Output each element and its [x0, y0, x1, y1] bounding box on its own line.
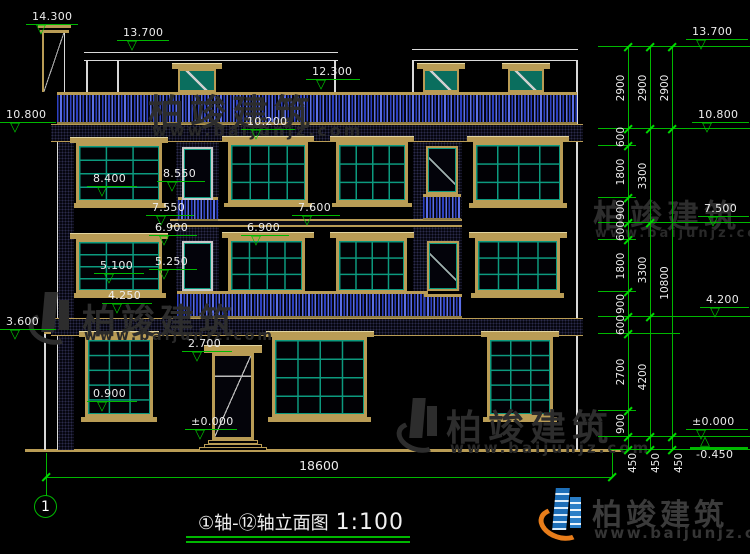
- marker-line: [117, 40, 169, 42]
- marker-value: 10.800: [0, 109, 47, 122]
- triangle-down-icon: ▽: [195, 430, 205, 440]
- dim-label: 450: [627, 453, 639, 473]
- window-2f-mid-left: [228, 238, 305, 293]
- left-wall-outer-line: [44, 333, 46, 450]
- right-roof-slab: [412, 49, 578, 61]
- elevation-marker-8550: 8.550 ▽: [157, 168, 205, 192]
- building-bar-icon: [570, 497, 581, 528]
- triangle-down-icon: ▽: [710, 308, 720, 318]
- dim-tick: [608, 473, 617, 482]
- dim-label: 450: [650, 453, 662, 473]
- dim-label: 900: [615, 294, 627, 314]
- marker-value: ±0.000: [185, 416, 235, 429]
- total-width-dim: 18600: [284, 458, 354, 473]
- triangle-down-icon: ▽: [10, 330, 20, 340]
- window-sill: [81, 417, 157, 422]
- elevation-marker-minus0450-right: △ -0.450: [690, 437, 748, 461]
- elevation-marker-4250: 4.250 ▽: [102, 290, 152, 314]
- watermark-url-left: www.baijunjz.com: [84, 328, 275, 344]
- marker-value: 7.500: [698, 203, 738, 216]
- drawing-title: ①轴-⑫轴立面图1:100: [190, 509, 412, 535]
- title-underline-2: [186, 541, 410, 543]
- marker-line: [185, 429, 237, 431]
- triangle-down-icon: ▽: [104, 274, 114, 284]
- elevation-marker-6900-mid: 6.900 ▽: [241, 222, 289, 246]
- triangle-down-icon: ▽: [97, 187, 107, 197]
- marker-value: 5.250: [149, 256, 189, 269]
- marker-line: [698, 216, 749, 218]
- triangle-down-icon: ▽: [192, 352, 202, 362]
- dim-extension-line: [598, 197, 636, 198]
- triangle-down-icon: ▽: [159, 236, 169, 246]
- brand-logo-url: www.baijunjz.com: [594, 524, 750, 542]
- marker-line: [241, 235, 289, 237]
- watermark-url-center: www.baijunjz.com: [450, 439, 651, 457]
- roof-parapet-balustrade: [57, 92, 577, 124]
- axis-bubble-label: 1: [41, 499, 50, 515]
- left-slab-post-a: [86, 61, 88, 92]
- triangle-down-icon: ▽: [112, 304, 122, 314]
- marker-value: 14.300: [26, 11, 73, 24]
- marker-value: 13.700: [686, 26, 733, 39]
- elevation-marker-10200: 10.200 ▽: [241, 116, 295, 140]
- dim-chain-line-outer: [672, 47, 673, 450]
- chimney-body: [42, 33, 65, 92]
- triangle-down-icon: ▽: [251, 130, 261, 140]
- marker-line: [700, 307, 749, 309]
- right-pavilion1-window: [423, 69, 459, 92]
- marker-value: ±0.000: [686, 416, 736, 429]
- entry-step-3: [199, 447, 267, 451]
- triangle-down-icon: ▽: [36, 25, 46, 35]
- elevation-marker-0000-entry: ±0.000 ▽: [185, 416, 237, 440]
- drawing-scale: 1:100: [336, 510, 404, 535]
- elevation-drawing-canvas: 2900 600 1800 900 600 1800 900 600 2700 …: [0, 0, 750, 554]
- left-slab-post-b: [117, 61, 119, 92]
- window-sill: [332, 203, 412, 207]
- triangle-down-icon: ▽: [159, 270, 169, 280]
- triangle-down-icon: ▽: [708, 217, 718, 227]
- marker-line: [26, 24, 78, 26]
- elevation-marker-4200-right: 4.200 ▽: [700, 294, 749, 318]
- marker-value: 6.900: [149, 222, 189, 235]
- triangle-down-icon: ▽: [302, 216, 312, 226]
- marker-value: 6.900: [241, 222, 281, 235]
- right-slab-post: [412, 61, 414, 92]
- triangle-down-icon: ▽: [10, 123, 20, 133]
- marker-value: 4.250: [102, 290, 142, 303]
- dim-chain-line-mid: [650, 47, 651, 450]
- marker-line: [0, 122, 56, 124]
- axis-bubble-1: 1: [34, 495, 57, 518]
- marker-line: [87, 401, 137, 403]
- marker-line: [149, 235, 197, 237]
- window-3f-mid-right: [336, 142, 408, 203]
- dim-extension-line: [598, 410, 636, 411]
- triangle-down-icon: ▽: [167, 182, 177, 192]
- marker-value: 10.200: [241, 116, 288, 129]
- bottom-dim-line: [46, 477, 612, 478]
- marker-value: 8.550: [157, 168, 197, 181]
- dim-label: 2900: [637, 75, 649, 102]
- window-1f-mid: [272, 337, 367, 417]
- window-sill: [471, 293, 564, 298]
- marker-line: [306, 79, 360, 81]
- elevation-marker-7600: 7.600 ▽: [292, 202, 340, 226]
- marker-value: 0.900: [87, 388, 127, 401]
- marker-line: [94, 273, 144, 275]
- small-balcony-balustrade-2f-right: [424, 294, 462, 318]
- marker-line: [102, 303, 152, 305]
- marker-line: [292, 215, 340, 217]
- triangle-down-icon: ▽: [316, 80, 326, 90]
- left-roof-slab: [84, 52, 338, 61]
- elevation-marker-14300: 14.300 ▽: [26, 11, 78, 35]
- elevation-marker-13700-right: 13.700 ▽: [686, 26, 748, 50]
- dim-label: 4200: [637, 364, 649, 391]
- window-cornice: [330, 232, 414, 238]
- triangle-up-icon: △: [700, 437, 710, 447]
- elevation-marker-3600-left: 3.600 ▽: [0, 316, 56, 340]
- window-cornice: [481, 331, 559, 337]
- dim-label: 3300: [637, 163, 649, 190]
- building-bar-icon: [427, 406, 437, 436]
- dim-label: 10800: [659, 266, 671, 299]
- dim-label: 3300: [637, 257, 649, 284]
- casement-window-2f: [427, 241, 459, 291]
- elevation-marker-13700-left: 13.700 ▽: [117, 27, 169, 51]
- marker-line: [157, 181, 205, 183]
- dim-label: 1800: [615, 159, 627, 186]
- triangle-down-icon: ▽: [127, 41, 137, 51]
- marker-line: [241, 129, 295, 131]
- window-3f-mid-left: [228, 142, 308, 203]
- marker-line: [149, 269, 197, 271]
- dim-chain-line-inner: [628, 47, 629, 450]
- elevation-marker-5250: 5.250 ▽: [149, 256, 197, 280]
- marker-line: [87, 186, 137, 188]
- window-sill: [268, 417, 371, 422]
- marker-value: 7.550: [146, 202, 186, 215]
- elevation-marker-7500-right: 7.500 ▽: [698, 203, 749, 227]
- marker-line: [146, 215, 194, 217]
- dim-extension-line: [598, 291, 636, 292]
- dim-extension-line: [598, 333, 680, 334]
- marker-value: 5.100: [94, 260, 134, 273]
- triangle-down-icon: ▽: [251, 236, 261, 246]
- dim-label: 450: [673, 453, 685, 473]
- marker-value: 13.700: [117, 27, 164, 40]
- elevation-marker-5100: 5.100 ▽: [94, 260, 144, 284]
- triangle-down-icon: ▽: [696, 40, 706, 50]
- dim-label: 2700: [615, 359, 627, 386]
- window-3f-right: [473, 142, 563, 203]
- elevation-marker-10800-right: 10.800 ▽: [692, 109, 749, 133]
- marker-value: -0.450: [690, 449, 734, 462]
- triangle-down-icon: ▽: [97, 402, 107, 412]
- dim-label: 1800: [615, 253, 627, 280]
- elevation-marker-2700: 2.700 ▽: [182, 338, 232, 362]
- dim-label: 900: [615, 414, 627, 434]
- title-underline-1: [186, 536, 410, 538]
- marker-value: 12.300: [306, 66, 353, 79]
- dim-label: 2900: [615, 75, 627, 102]
- elevation-marker-0900: 0.900 ▽: [87, 388, 137, 412]
- right-pavilion2-window: [508, 69, 544, 92]
- window-cornice: [469, 232, 567, 238]
- marker-line: [182, 351, 232, 353]
- marker-value: 8.400: [87, 173, 127, 186]
- dim-label: 900: [615, 200, 627, 220]
- marker-value: 10.800: [692, 109, 739, 122]
- elevation-marker-8400: 8.400 ▽: [87, 173, 137, 197]
- small-balcony-balustrade-3f-right: [423, 194, 461, 220]
- window-cornice: [266, 331, 374, 337]
- building-bar-icon: [59, 300, 69, 330]
- marker-value: 3.600: [0, 316, 40, 329]
- window-2f-mid-right: [336, 238, 407, 293]
- marker-value: 4.200: [700, 294, 740, 307]
- brand-logo-icon: [538, 486, 588, 540]
- window-2f-right: [475, 238, 560, 293]
- marker-value: 2.700: [182, 338, 222, 351]
- marker-line: [0, 329, 56, 331]
- watermark-logo-icon-center: [396, 396, 450, 452]
- window-sill: [469, 203, 567, 208]
- elevation-marker-10800-left: 10.800 ▽: [0, 109, 56, 133]
- triangle-down-icon: ▽: [702, 123, 712, 133]
- casement-window-3f: [426, 146, 458, 194]
- marker-value: 7.600: [292, 202, 332, 215]
- dim-label: 2900: [659, 75, 671, 102]
- marker-line: [692, 122, 749, 124]
- elevation-marker-12300: 12.300 ▽: [306, 66, 360, 90]
- drawing-title-text: ①轴-⑫轴立面图: [198, 513, 329, 534]
- window-cornice: [467, 136, 569, 142]
- elevation-marker-6900-left: 6.900 ▽: [149, 222, 197, 246]
